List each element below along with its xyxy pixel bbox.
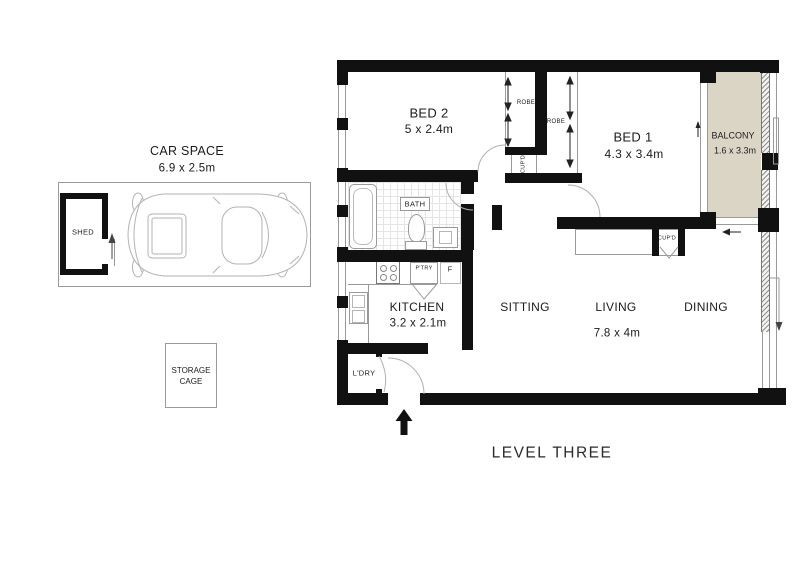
window-segment [338, 308, 346, 340]
cupboard-side-wall [678, 229, 685, 256]
balcony-pillar [762, 153, 778, 170]
balcony-sliding-door [700, 83, 708, 212]
window-segment [338, 262, 346, 296]
car-space-dims: 6.9 x 2.5m [159, 163, 216, 175]
kitchen-sink-bowl [352, 295, 365, 308]
bath-label: BATH [405, 200, 426, 208]
fridge-label: F [448, 267, 453, 274]
laundry-door-jamb [376, 351, 382, 357]
bed1-label: BED 1 [613, 131, 652, 144]
window-segment [338, 182, 346, 205]
bath-basin [439, 231, 452, 244]
toilet-bowl [408, 214, 425, 242]
hall-cupboard-label: CUP'D [521, 155, 527, 173]
wall-kitchen-right [462, 262, 473, 350]
plan-title: LEVEL THREE [492, 445, 613, 461]
balcony-glazed-wall [761, 73, 770, 153]
sitting-label: SITTING [500, 301, 549, 313]
living-cupboard-label: CUP'D [658, 236, 676, 242]
burner [380, 274, 387, 281]
laundry-door-leaf [379, 356, 386, 392]
bed2-door-arc [478, 145, 505, 172]
shed-wall [60, 193, 108, 199]
robe-bed1-label: ROBE [547, 119, 565, 125]
floor-plan: CAR SPACE 6.9 x 2.5m SHED STORAGE CAGE B… [0, 0, 800, 564]
wall-top [337, 60, 760, 72]
bed1-door-arc [568, 185, 600, 217]
balcony-slide-arrow [722, 229, 741, 236]
dining-label: DINING [684, 301, 728, 313]
cooktop [376, 261, 400, 284]
bed2-label: BED 2 [409, 107, 448, 120]
wall-hall-bottom [505, 173, 582, 183]
cupboard-side-wall [652, 229, 659, 256]
entry-door-arc [388, 358, 424, 394]
living-dims: 7.8 x 4m [594, 328, 641, 340]
kitchen-bench-edge [368, 285, 369, 343]
entry-arrow [396, 409, 413, 435]
burner [390, 265, 397, 272]
window-segment [338, 217, 346, 247]
pantry-door [412, 284, 437, 299]
balcony-dims: 1.6 x 3.3m [714, 147, 756, 156]
window-segment [762, 332, 770, 390]
window-segment [338, 85, 346, 118]
robe-bed2-label: ROBE [517, 100, 535, 106]
dining-sliding-leaf [770, 278, 779, 323]
kitchen-dims: 3.2 x 2.1m [390, 318, 447, 330]
wall-corner [760, 60, 779, 73]
shed-wall [102, 264, 108, 275]
storage-cage-label-line2: CAGE [180, 377, 203, 386]
car-space-label: CAR SPACE [150, 145, 224, 158]
balcony-floor [703, 72, 761, 217]
bathtub-inner [353, 188, 373, 245]
outer-face-line [776, 73, 777, 391]
wall-bed1-living [557, 217, 716, 229]
shed-wall [60, 269, 108, 275]
window-segment [338, 130, 346, 168]
robe-bed2-front [505, 72, 506, 147]
robe-bed1-front [577, 72, 578, 173]
burner [380, 265, 387, 272]
storage-cage-label-line1: STORAGE [172, 366, 211, 375]
wall-left [337, 118, 348, 130]
living-label: LIVING [595, 301, 636, 313]
wall-robe-divider [535, 72, 547, 147]
balcony-glazed-wall [761, 170, 770, 208]
wall-robe-bottom [505, 147, 547, 155]
toilet-cistern [405, 241, 427, 250]
wall-corner [758, 388, 786, 405]
kitchen-bench-edge [348, 284, 436, 285]
kitchen-sink-bowl [352, 310, 365, 323]
balcony-window [714, 217, 758, 225]
shed-wall [60, 193, 66, 275]
wall-bottom [420, 393, 765, 405]
shed-wall [102, 193, 108, 239]
wall-bath-kitchen [337, 250, 473, 262]
laundry-door-jamb [376, 389, 382, 395]
kitchen-label: KITCHEN [390, 301, 445, 313]
bed2-dims: 5 x 2.4m [405, 123, 453, 135]
shed-label: SHED [72, 228, 94, 236]
wall-bath-right [461, 204, 474, 250]
wall-bed2-bath [337, 170, 478, 182]
wall-kitchen-bottom [348, 343, 428, 354]
living-lowboy [575, 229, 653, 255]
balcony-pillar [700, 212, 716, 229]
wall-left [337, 205, 348, 217]
wall-bath-pillar [461, 182, 474, 194]
balcony-pillar [758, 208, 779, 232]
balcony-pillar [700, 68, 716, 83]
storage-cage: STORAGE CAGE [165, 343, 217, 408]
wall-left [337, 296, 348, 308]
wall-nib [492, 205, 502, 230]
laundry-label: L'DRY [353, 369, 376, 377]
shed-door-leaf [114, 239, 115, 266]
burner [390, 274, 397, 281]
pantry-label: P'TRY [415, 266, 432, 272]
wall-left [337, 60, 348, 85]
balcony-label: BALCONY [711, 132, 754, 141]
dining-glazed-wall [761, 232, 770, 332]
bed1-dims: 4.3 x 3.4m [604, 148, 663, 160]
